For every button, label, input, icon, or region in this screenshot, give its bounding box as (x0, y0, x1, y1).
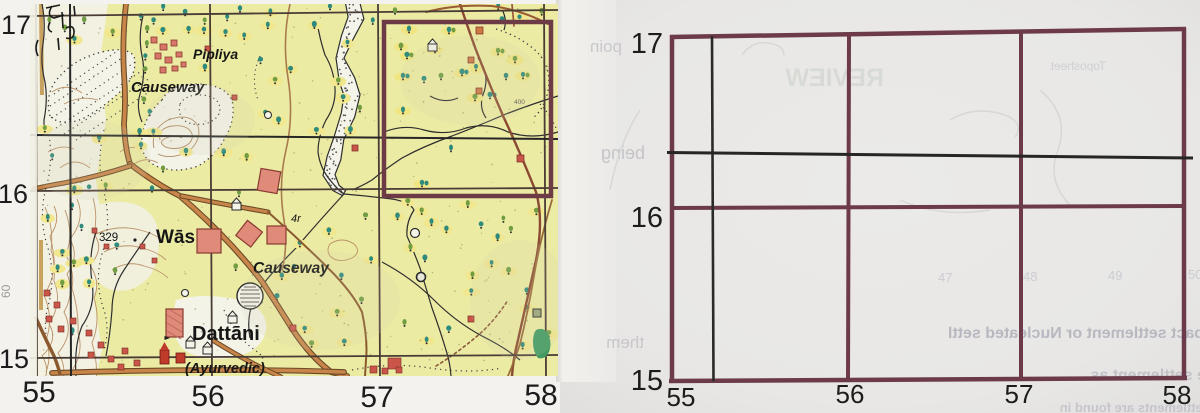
svg-text:50: 50 (1188, 267, 1200, 282)
svg-text:329: 329 (99, 232, 118, 244)
svg-text:15: 15 (631, 365, 663, 397)
svg-text:them: them (606, 333, 644, 352)
svg-text:56: 56 (191, 380, 224, 413)
svg-text:56: 56 (836, 379, 865, 409)
svg-text:55: 55 (667, 382, 696, 412)
svg-text:15: 15 (0, 344, 29, 374)
svg-text:47: 47 (938, 270, 952, 285)
svg-text:58: 58 (1163, 380, 1192, 410)
svg-text:17: 17 (1, 10, 31, 40)
svg-text:Wās: Wās (156, 227, 195, 248)
svg-text:Pipliya: Pipliya (193, 46, 238, 62)
svg-text:49: 49 (1108, 268, 1122, 283)
svg-text:4r: 4r (291, 213, 302, 225)
svg-text:(Ayurvedic): (Ayurvedic) (185, 361, 265, 377)
svg-text:60: 60 (0, 284, 13, 298)
svg-text:Toposheet: Toposheet (1050, 59, 1106, 73)
svg-text:17: 17 (631, 28, 663, 60)
svg-text:being: being (601, 143, 645, 163)
svg-text:Dattāni: Dattāni (192, 323, 260, 345)
svg-text:58: 58 (524, 379, 557, 412)
svg-text:16: 16 (631, 202, 663, 234)
svg-text:pact settlement or Nucleated s: pact settlement or Nucleated settl (948, 325, 1200, 342)
svg-text:REVIEW: REVIEW (785, 64, 884, 92)
svg-text:57: 57 (1005, 379, 1034, 409)
svg-text:55: 55 (22, 376, 55, 409)
svg-text:poin: poin (590, 37, 622, 56)
svg-text:48: 48 (1023, 269, 1037, 284)
svg-text:57: 57 (360, 381, 393, 413)
svg-text:16: 16 (0, 179, 28, 209)
